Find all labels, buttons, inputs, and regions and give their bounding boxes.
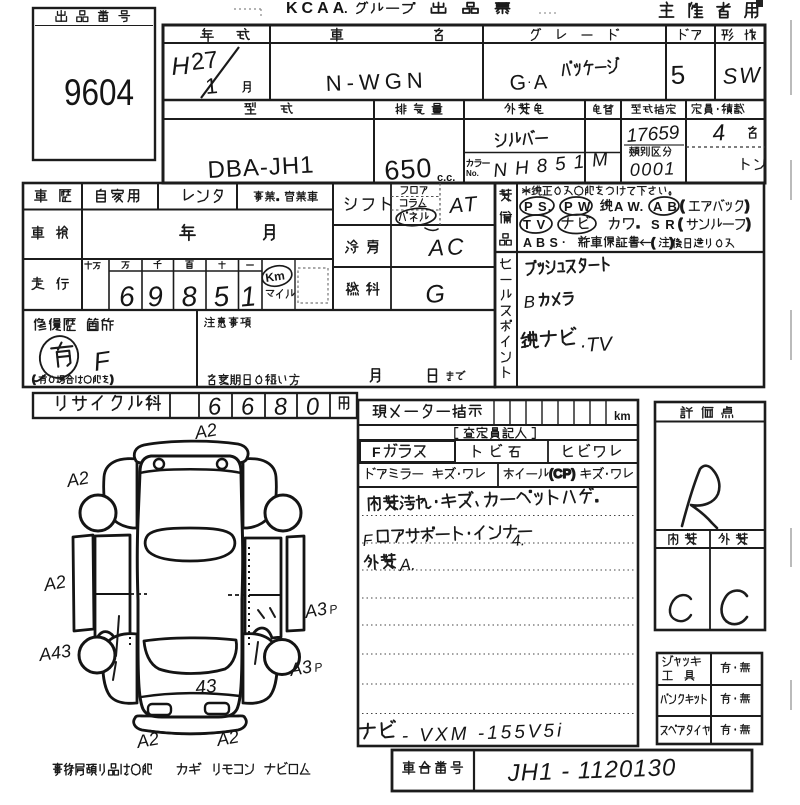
svg-text:No.: No. [466, 169, 479, 178]
svg-text:5: 5 [670, 60, 686, 90]
svg-text:KCAA: KCAA [286, 0, 348, 17]
svg-text:17659: 17659 [626, 122, 681, 147]
svg-text:SW: SW [722, 62, 763, 89]
svg-text:DBA-JH1: DBA-JH1 [207, 151, 315, 184]
svg-text:Km: Km [264, 268, 285, 285]
svg-text:1: 1 [239, 280, 257, 312]
svg-text:.: . [344, 1, 348, 16]
svg-text:1: 1 [204, 73, 218, 99]
svg-text:·: · [562, 235, 566, 249]
svg-text:A2: A2 [41, 571, 67, 595]
svg-text:N-WGN: N-WGN [325, 67, 428, 96]
svg-text:0: 0 [305, 393, 321, 421]
svg-text:5: 5 [212, 280, 231, 312]
svg-text:F: F [372, 444, 381, 460]
svg-text:8: 8 [180, 280, 199, 312]
svg-text:A2: A2 [192, 419, 218, 443]
svg-text:B: B [523, 292, 536, 312]
svg-text:·: · [527, 73, 532, 89]
svg-text:A2: A2 [214, 726, 240, 750]
svg-text:): ) [745, 198, 749, 213]
svg-text:9: 9 [146, 280, 164, 312]
svg-text:A2: A2 [134, 728, 160, 752]
svg-text:43: 43 [194, 676, 218, 699]
svg-text:H: H [170, 52, 191, 81]
svg-text:(: ( [680, 198, 685, 213]
svg-text:650: 650 [383, 153, 433, 186]
svg-text:G: G [509, 71, 527, 95]
svg-text:4.: 4. [511, 532, 525, 550]
svg-text:A W.: A W. [614, 199, 644, 214]
svg-text:8: 8 [273, 393, 289, 421]
svg-text:T V: T V [523, 217, 546, 232]
svg-text:6: 6 [240, 393, 256, 421]
svg-text:A3: A3 [302, 598, 328, 622]
svg-text:A.: A. [398, 555, 417, 575]
svg-text:A2: A2 [64, 467, 90, 491]
svg-text:0001: 0001 [629, 158, 676, 180]
svg-text:·TV: ·TV [579, 333, 614, 357]
svg-text:): ) [746, 216, 750, 231]
svg-text:G: G [424, 280, 445, 309]
svg-text:(CP): (CP) [549, 466, 576, 481]
svg-text:km: km [614, 411, 631, 423]
svg-text:A: A [533, 71, 548, 94]
svg-text:4: 4 [711, 119, 726, 146]
svg-text:AC: AC [426, 233, 467, 261]
svg-text:A3: A3 [287, 656, 313, 680]
svg-text:6: 6 [207, 393, 223, 421]
svg-text:9604: 9604 [64, 72, 134, 113]
svg-text:.: . [594, 486, 600, 506]
svg-text:27: 27 [190, 46, 219, 76]
svg-text:.: . [636, 216, 640, 232]
svg-text:): ) [110, 375, 113, 386]
svg-text:(: ( [678, 216, 683, 231]
svg-text:AT: AT [446, 193, 479, 219]
svg-text:S R: S R [651, 217, 676, 232]
svg-text:A B S: A B S [523, 236, 558, 250]
svg-text:6: 6 [118, 280, 137, 312]
svg-text:.: . [276, 189, 279, 203]
